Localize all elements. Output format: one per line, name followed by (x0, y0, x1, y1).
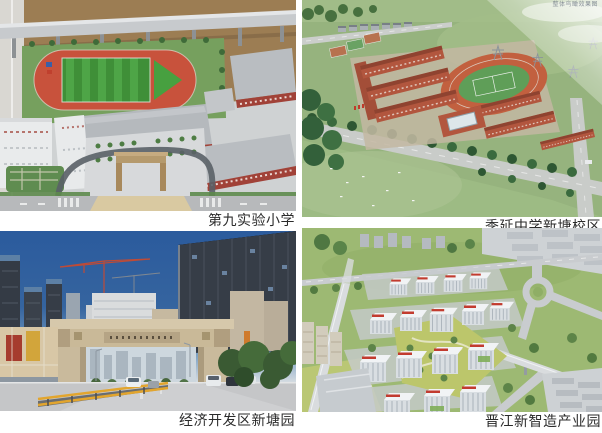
photo-caption: 晋江新智造产业园 (302, 414, 602, 429)
photo-collage: 第九实验小学 (0, 0, 602, 433)
photo-jiyan-middle-school-campus: 整体鸟瞰效果图 季延中学新塘校区 (302, 0, 602, 234)
green-terrace (478, 356, 490, 362)
aerial-photo-graphic (0, 0, 296, 211)
photo-industrial-park-rendering: 晋江新智造产业园 (302, 228, 602, 429)
street-photo-graphic (0, 231, 296, 411)
photo-ninth-experimental-primary-school: 第九实验小学 (0, 0, 296, 228)
industrial-park-graphic (302, 228, 602, 412)
photo-caption: 经济开发区新塘园 (0, 413, 296, 428)
aerial-rendering-graphic (302, 0, 602, 217)
photo-caption: 第九实验小学 (0, 213, 296, 228)
watermark-text: 整体鸟瞰效果图 (552, 2, 598, 9)
storefront-facades-left (0, 327, 58, 387)
photo-economic-development-zone-gate: 经济开发区新塘园 (0, 231, 296, 428)
city-blocks-bottom-right (542, 368, 602, 412)
